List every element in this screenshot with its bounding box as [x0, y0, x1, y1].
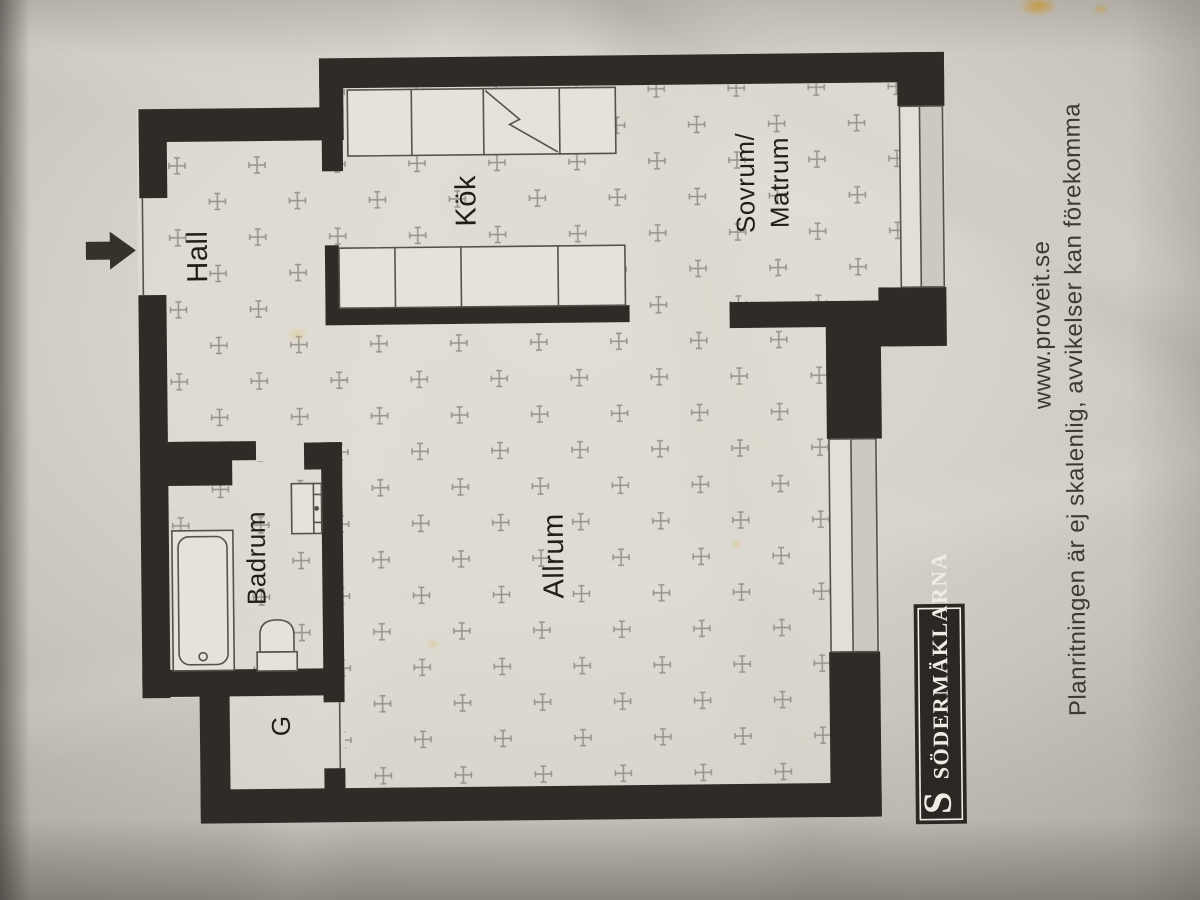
living-room-window [829, 439, 878, 652]
website-text: www.proveit.se [1028, 241, 1057, 411]
kitchen-island-counter [339, 245, 626, 308]
floor-plan-drawing: Hall Kök Sovrum/ Matrum Allrum Badrum G … [0, 0, 1200, 900]
room-label-hall: Hall [182, 231, 215, 283]
room-label-bedroom-line1: Sovrum/ [730, 132, 761, 233]
print-annotations: www.proveit.se Planritningen är ej skale… [1026, 103, 1091, 717]
disclaimer-text: Planritningen är ej skalenlig, avvikelse… [1058, 103, 1091, 717]
room-label-bedroom-line2: Matrum [764, 137, 795, 228]
room-label-living: Allrum [538, 513, 571, 599]
kitchen-counter-top [347, 87, 616, 156]
room-label-closet: G [266, 715, 296, 736]
toilet [257, 620, 298, 671]
room-label-kitchen: Kök [450, 175, 483, 227]
room-label-bathroom: Badrum [241, 511, 272, 605]
floor-plan-photo: Hall Kök Sovrum/ Matrum Allrum Badrum G … [0, 0, 1200, 900]
brand-logo: S SÖDERMÄKLARNA [912, 552, 967, 825]
entry-arrow-icon [86, 231, 136, 270]
brand-initial: S [915, 790, 960, 814]
brand-name: SÖDERMÄKLARNA [926, 552, 953, 780]
bedroom-window [899, 106, 944, 287]
sink [291, 483, 322, 533]
bathtub [172, 530, 234, 671]
